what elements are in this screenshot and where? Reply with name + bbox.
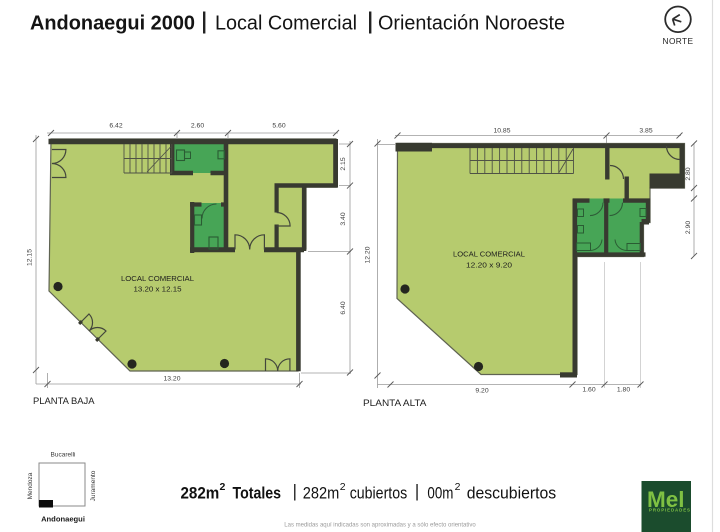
svg-text:2.90: 2.90 — [685, 221, 692, 234]
svg-text:Local Comercial: Local Comercial — [215, 12, 357, 35]
svg-text:Bucarelli: Bucarelli — [51, 452, 76, 459]
svg-text:2: 2 — [340, 481, 346, 493]
svg-text:5.60: 5.60 — [272, 123, 285, 130]
svg-text:3.40: 3.40 — [340, 212, 347, 225]
svg-text:2.60: 2.60 — [191, 123, 204, 130]
svg-text:00m: 00m — [427, 484, 453, 502]
svg-text:12.20: 12.20 — [365, 246, 372, 263]
svg-text:PLANTA ALTA: PLANTA ALTA — [363, 398, 427, 409]
svg-text:Mendoza: Mendoza — [27, 472, 34, 499]
svg-text:10.85: 10.85 — [493, 128, 510, 135]
svg-text:LOCAL COMERCIAL: LOCAL COMERCIAL — [121, 274, 194, 283]
svg-text:12.20 x 9.20: 12.20 x 9.20 — [466, 261, 512, 270]
svg-text:2.80: 2.80 — [685, 167, 692, 180]
svg-text:13.20 x 12.15: 13.20 x 12.15 — [134, 285, 182, 294]
svg-text:12.15: 12.15 — [27, 249, 34, 266]
svg-text:Juramento: Juramento — [90, 470, 97, 501]
svg-text:cubiertos: cubiertos — [350, 484, 408, 502]
svg-text:3.85: 3.85 — [639, 128, 652, 135]
svg-text:2.15: 2.15 — [340, 157, 347, 170]
svg-text:Totales: Totales — [233, 484, 282, 502]
svg-text:6.42: 6.42 — [109, 123, 122, 130]
svg-text:PLANTA BAJA: PLANTA BAJA — [33, 396, 95, 407]
svg-text:descubiertos: descubiertos — [467, 484, 557, 502]
svg-text:Las medidas aquí indicadas son: Las medidas aquí indicadas son aproximad… — [284, 523, 476, 529]
svg-text:282m: 282m — [181, 484, 220, 502]
svg-text:Andonaegui 2000: Andonaegui 2000 — [30, 12, 195, 35]
svg-text:1.60: 1.60 — [582, 387, 595, 394]
svg-text:1.80: 1.80 — [617, 387, 630, 394]
svg-text:2: 2 — [220, 481, 226, 493]
svg-text:PROPIEDADES: PROPIEDADES — [649, 508, 691, 513]
svg-text:NORTE: NORTE — [663, 36, 694, 46]
svg-text:Andonaegui: Andonaegui — [41, 515, 85, 524]
svg-text:282m: 282m — [303, 484, 340, 502]
svg-text:6.40: 6.40 — [340, 301, 347, 314]
svg-text:Orientación Noroeste: Orientación Noroeste — [378, 12, 565, 35]
svg-text:2: 2 — [455, 481, 461, 493]
svg-text:9.20: 9.20 — [475, 388, 488, 395]
svg-text:LOCAL COMERCIAL: LOCAL COMERCIAL — [453, 250, 525, 259]
svg-text:13.20: 13.20 — [163, 376, 180, 383]
